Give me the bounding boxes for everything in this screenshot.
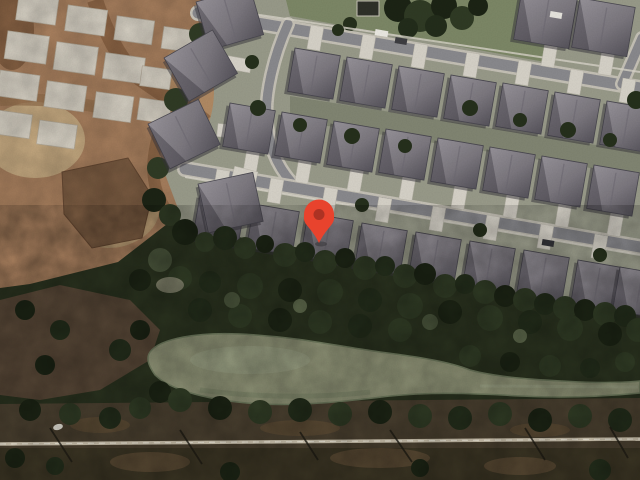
pin-dot [314, 209, 325, 220]
pin-shadow [315, 242, 327, 247]
satellite-map-view[interactable] [0, 0, 640, 480]
satellite-map-canvas[interactable] [0, 0, 640, 480]
